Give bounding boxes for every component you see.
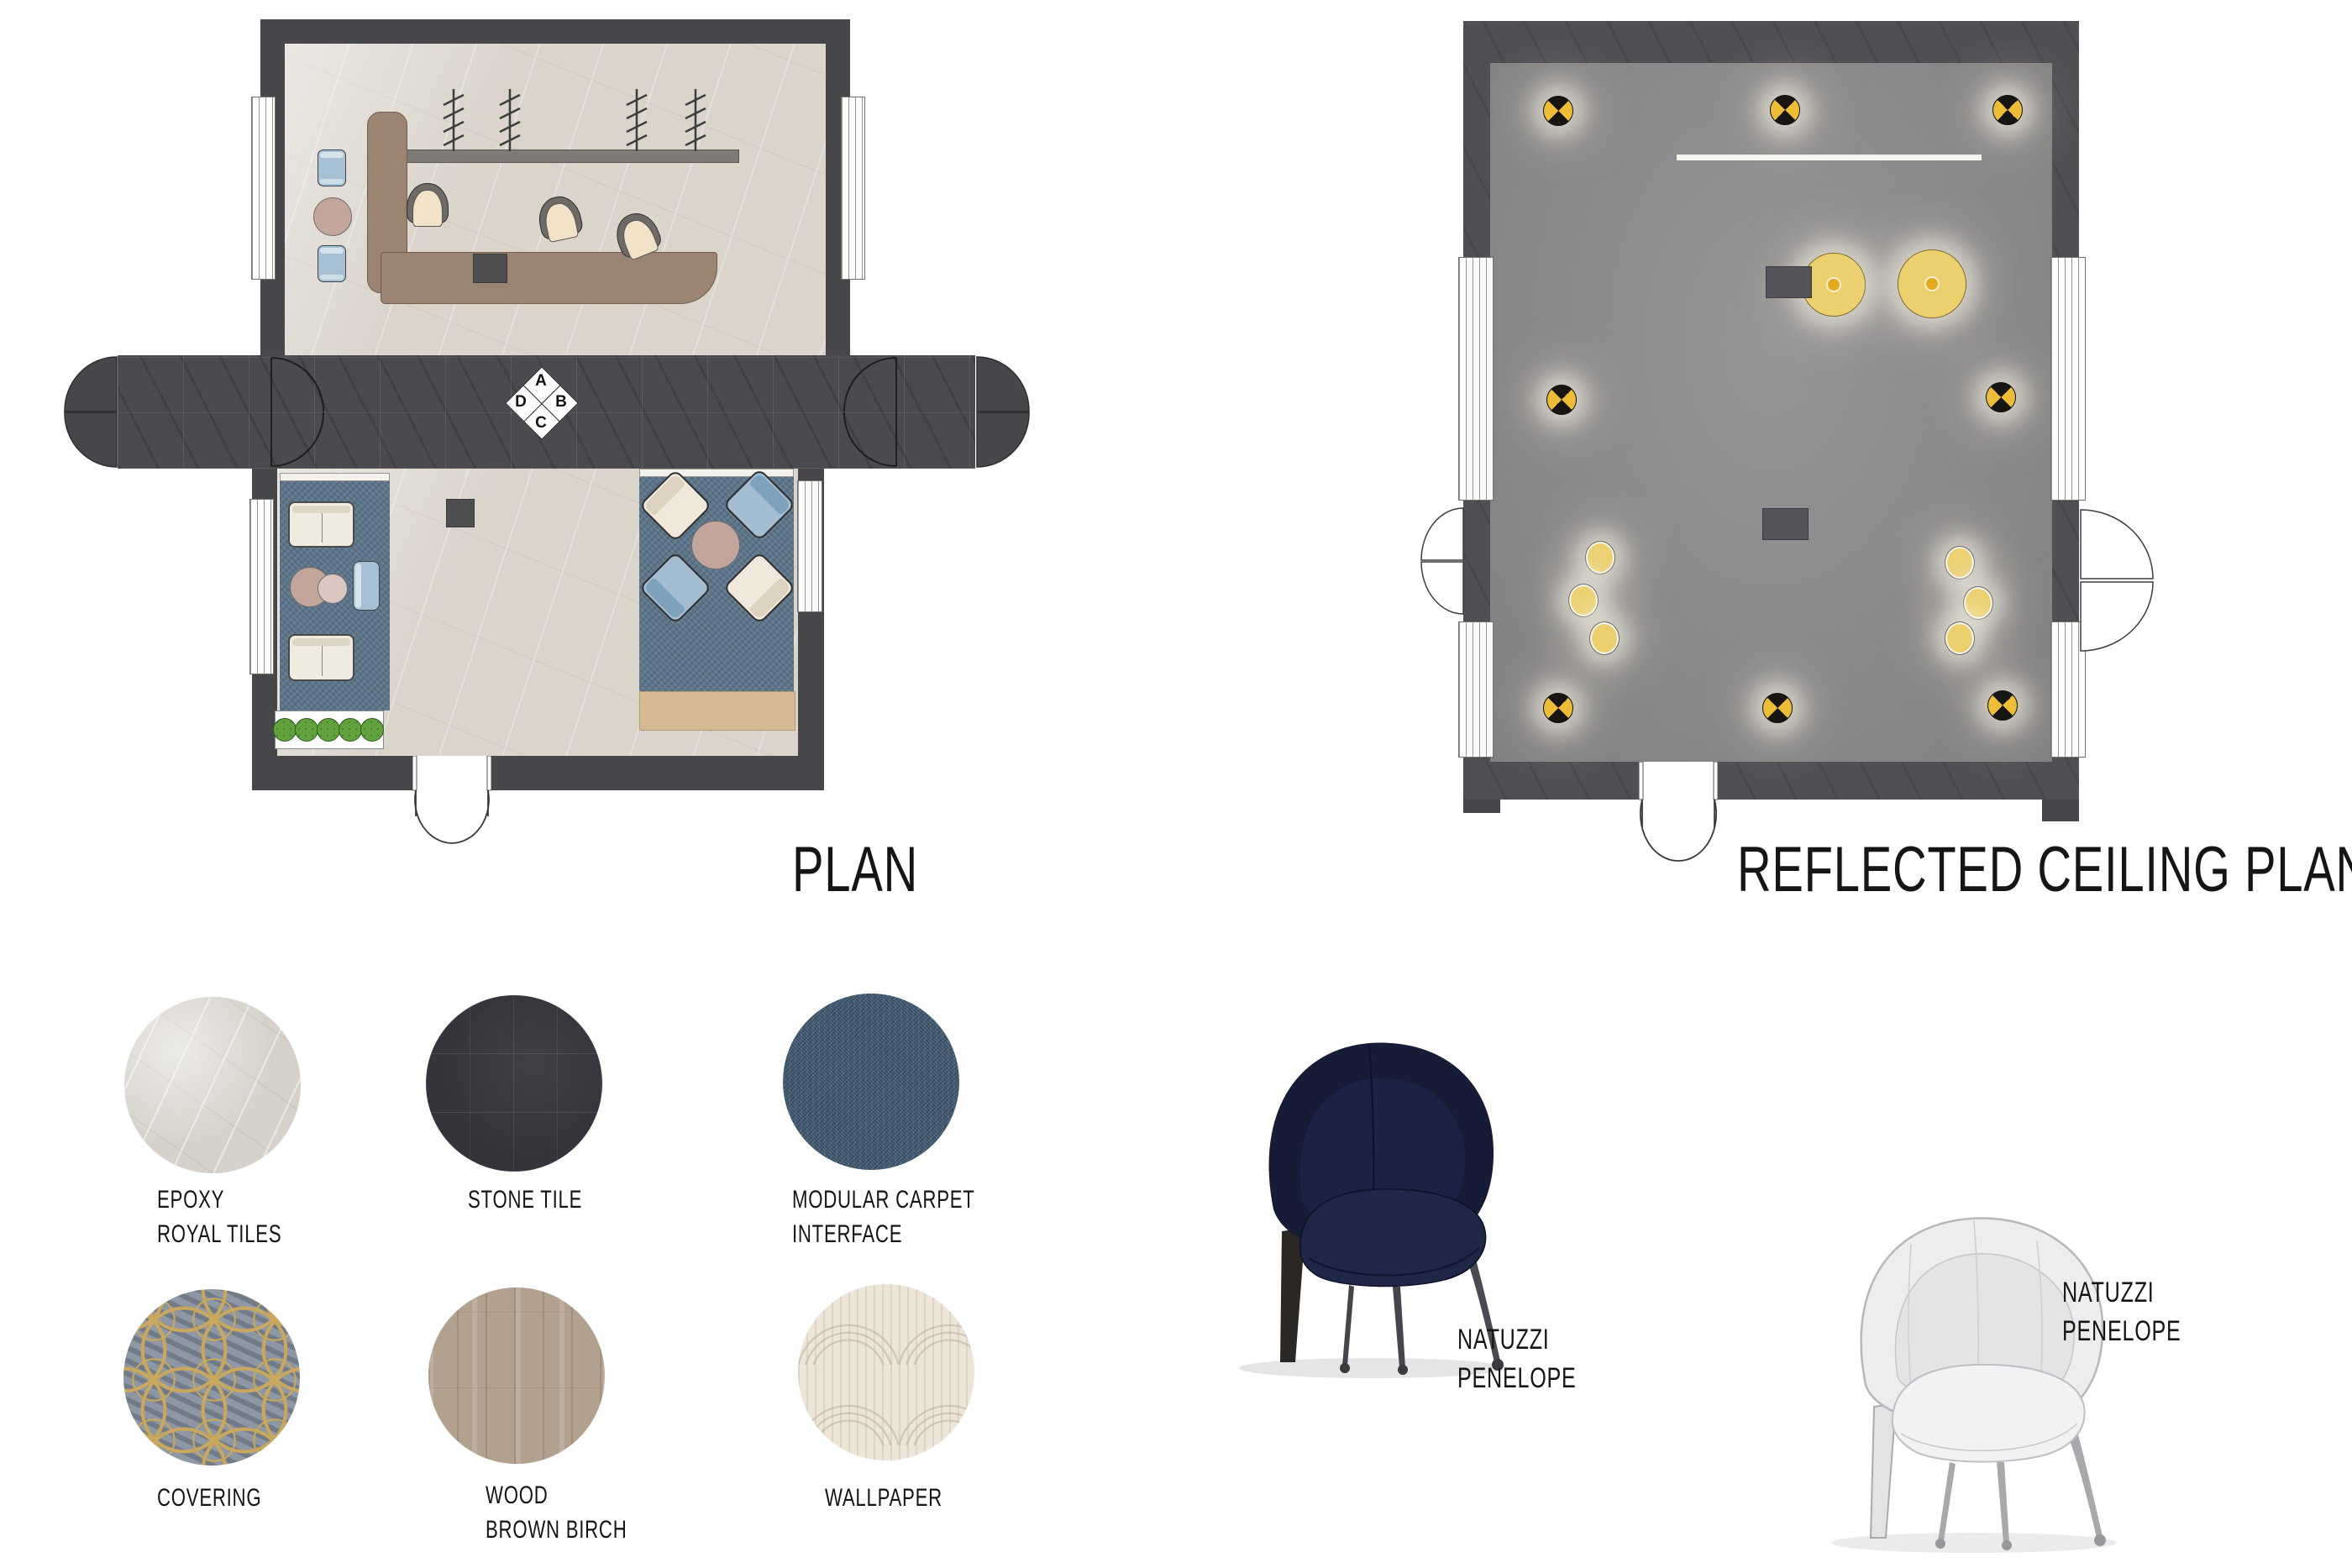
lounge-floor: [277, 469, 798, 756]
material-swatch-stone: [426, 995, 602, 1172]
downlight-symbol: [1964, 587, 1992, 619]
coat-rack-icon: [497, 87, 522, 153]
spotlight-symbol: [1986, 382, 2016, 412]
spotlight-symbol: [1762, 693, 1793, 723]
product-brand: NATUZZI: [1457, 1320, 1577, 1359]
spotlight-symbol: [1543, 693, 1573, 723]
window: [797, 480, 822, 612]
linear-light: [1676, 154, 1982, 161]
material-label-line: WOOD: [486, 1478, 627, 1513]
downlight-symbol: [1945, 547, 1974, 579]
ceiling-window: [1458, 621, 1494, 758]
ceiling-window: [1458, 257, 1494, 501]
round-table-right: [691, 521, 740, 569]
ceiling-walls: [1463, 21, 2079, 800]
material-label: MODULAR CARPETINTERFACE: [792, 1183, 975, 1251]
material-swatch-epoxy: [124, 997, 301, 1173]
product-model: PENELOPE: [2062, 1312, 2181, 1350]
elevation-marker: A B C D: [506, 367, 576, 438]
plan-title: PLAN: [780, 838, 930, 902]
plant-icon: [273, 718, 297, 742]
reception-floor: [285, 44, 826, 355]
product-image-white-armchair: [1785, 1163, 2163, 1566]
ceiling-interior: [1490, 63, 2052, 762]
side-door-left: [1420, 506, 1465, 616]
downlight-symbol: [1590, 622, 1619, 654]
side-door-right: [2079, 508, 2156, 653]
spotlight-symbol: [1543, 96, 1573, 126]
spotlight-symbol: [1992, 95, 2023, 125]
ceiling-panel: [1762, 508, 1809, 540]
lounge-rooms: [252, 469, 824, 790]
ceiling-exit-door: [1639, 762, 1718, 867]
product-label: NATUZZI PENELOPE: [2062, 1273, 2181, 1350]
plant-icon: [295, 718, 318, 742]
entrance-door-left: [63, 355, 118, 469]
material-label-line: WALLPAPER: [825, 1481, 942, 1515]
material-label-line: BROWN BIRCH: [486, 1513, 627, 1547]
material-label: COVERING: [157, 1481, 261, 1515]
marker-letter-c: C: [533, 414, 549, 433]
downlight-symbol: [1945, 622, 1974, 654]
corridor-double-door-left: [269, 355, 355, 469]
reception-chair: [407, 183, 449, 223]
wall-stub: [1463, 800, 1500, 813]
entrance-door-right: [975, 355, 1043, 469]
reception-desk-counter: [381, 252, 717, 304]
material-label-line: COVERING: [157, 1481, 261, 1515]
presentation-board: A B C D: [0, 0, 2352, 1568]
product-brand: NATUZZI: [2062, 1273, 2181, 1312]
marker-letter-d: D: [512, 393, 529, 412]
window: [249, 499, 274, 674]
material-label: WALLPAPER: [825, 1481, 942, 1515]
plant-icon: [360, 718, 384, 742]
downlight-symbol: [1586, 542, 1614, 574]
spotlight-symbol: [1546, 385, 1577, 415]
spotlight-symbol: [1770, 95, 1800, 125]
material-swatch-wood: [428, 1287, 605, 1464]
material-label: STONE TILE: [468, 1183, 582, 1217]
wall-stub: [2042, 800, 2079, 821]
exit-double-door: [412, 756, 491, 848]
material-label: WOODBROWN BIRCH: [486, 1478, 627, 1547]
ceiling-plan-title: REFLECTED CEILING PLAN: [1737, 838, 2352, 902]
desk-equipment: [473, 254, 507, 283]
pendant-light-symbol: [1898, 249, 1966, 318]
visitor-chair: [318, 245, 346, 282]
coat-rack-icon: [624, 87, 649, 153]
material-label-line: INTERFACE: [792, 1217, 975, 1251]
reception-room: [260, 19, 850, 355]
spotlight-symbol: [1987, 690, 2018, 721]
ceiling-panel: [1766, 266, 1812, 298]
ceiling-window: [2050, 257, 2086, 501]
material-swatch-carpetblue: [783, 994, 959, 1170]
product-model: PENELOPE: [1457, 1359, 1577, 1398]
diamond-lounge-chair: [722, 551, 796, 625]
visitor-chair: [318, 149, 346, 186]
white-armchair-illustration: [1785, 1163, 2163, 1566]
corridor-double-door-right: [812, 355, 899, 469]
material-label: EPOXYROYAL TILES: [157, 1183, 281, 1251]
plant-icon: [317, 718, 340, 742]
material-swatch-covering: [123, 1289, 300, 1466]
marker-letter-b: B: [553, 393, 570, 412]
reflected-ceiling-plan: [1421, 21, 2160, 894]
marker-letter-a: A: [533, 372, 549, 391]
coat-rack-icon: [683, 87, 708, 153]
material-label-line: EPOXY: [157, 1183, 281, 1217]
planter-box: [275, 711, 384, 749]
material-label-line: MODULAR CARPET: [792, 1183, 975, 1217]
floor-plan: A B C D: [63, 19, 1063, 901]
product-label: NATUZZI PENELOPE: [1457, 1320, 1577, 1398]
material-label-line: STONE TILE: [468, 1183, 582, 1217]
plant-icon: [339, 718, 362, 742]
window: [251, 97, 276, 280]
window: [841, 97, 865, 280]
coat-rack-icon: [441, 87, 466, 153]
material-label-line: ROYAL TILES: [157, 1217, 281, 1251]
downlight-symbol: [1569, 585, 1598, 616]
material-swatch-wallpaper: [798, 1284, 974, 1460]
side-table: [313, 197, 352, 236]
